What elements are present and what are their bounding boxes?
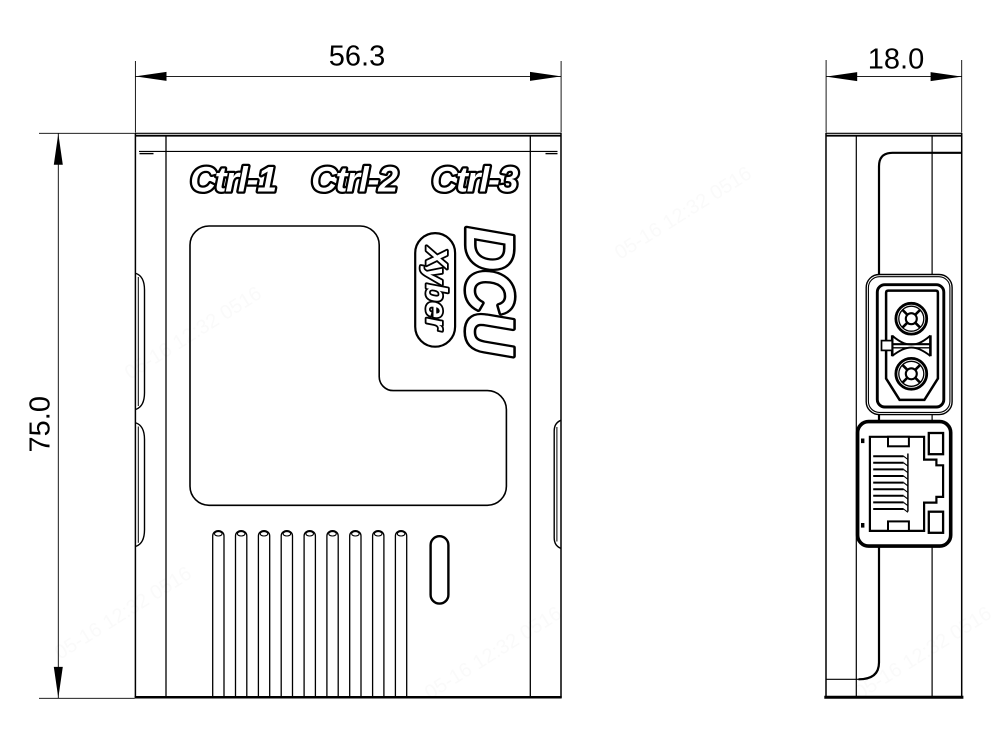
- svg-text:Xyber: Xyber: [420, 246, 453, 332]
- svg-text:56.3: 56.3: [329, 40, 385, 72]
- svg-text:18.0: 18.0: [868, 44, 924, 76]
- svg-text:Ctrl-3: Ctrl-3: [432, 160, 519, 200]
- svg-text:DCU: DCU: [452, 227, 528, 357]
- svg-text:75.0: 75.0: [25, 396, 57, 452]
- svg-text:Ctrl-1: Ctrl-1: [190, 160, 276, 200]
- svg-text:Ctrl-2: Ctrl-2: [311, 160, 398, 200]
